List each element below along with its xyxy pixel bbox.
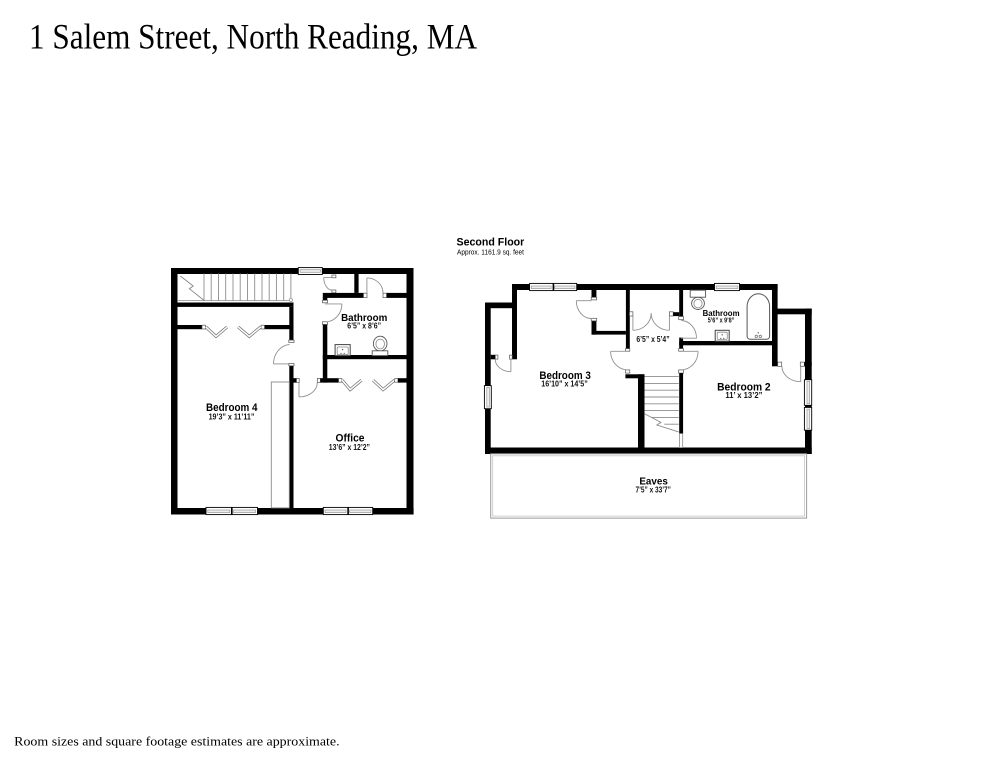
svg-text:6’5” x 5’4”: 6’5” x 5’4” [636, 335, 669, 344]
svg-text:1 Salem Street, North Reading,: 1 Salem Street, North Reading, MA [29, 17, 477, 57]
svg-text:Bathroom: Bathroom [703, 308, 740, 318]
svg-text:16’10” x 14’5”: 16’10” x 14’5” [541, 379, 588, 388]
svg-text:19’3” x 11’11”: 19’3” x 11’11” [209, 412, 255, 421]
svg-text:5’6” x 9’8”: 5’6” x 9’8” [708, 318, 735, 325]
svg-text:Approx. 1161.9 sq. feet: Approx. 1161.9 sq. feet [457, 248, 525, 257]
svg-text:Second Floor: Second Floor [457, 236, 526, 248]
svg-text:7’5” x 33’7”: 7’5” x 33’7” [635, 486, 671, 495]
svg-text:6’5” x 8’6”: 6’5” x 8’6” [347, 321, 381, 330]
svg-text:13’6” x 12’2”: 13’6” x 12’2” [329, 443, 370, 452]
svg-text:Room sizes and square footage: Room sizes and square footage estimates … [14, 734, 339, 748]
svg-text:11’ x 13’2”: 11’ x 13’2” [725, 391, 762, 400]
